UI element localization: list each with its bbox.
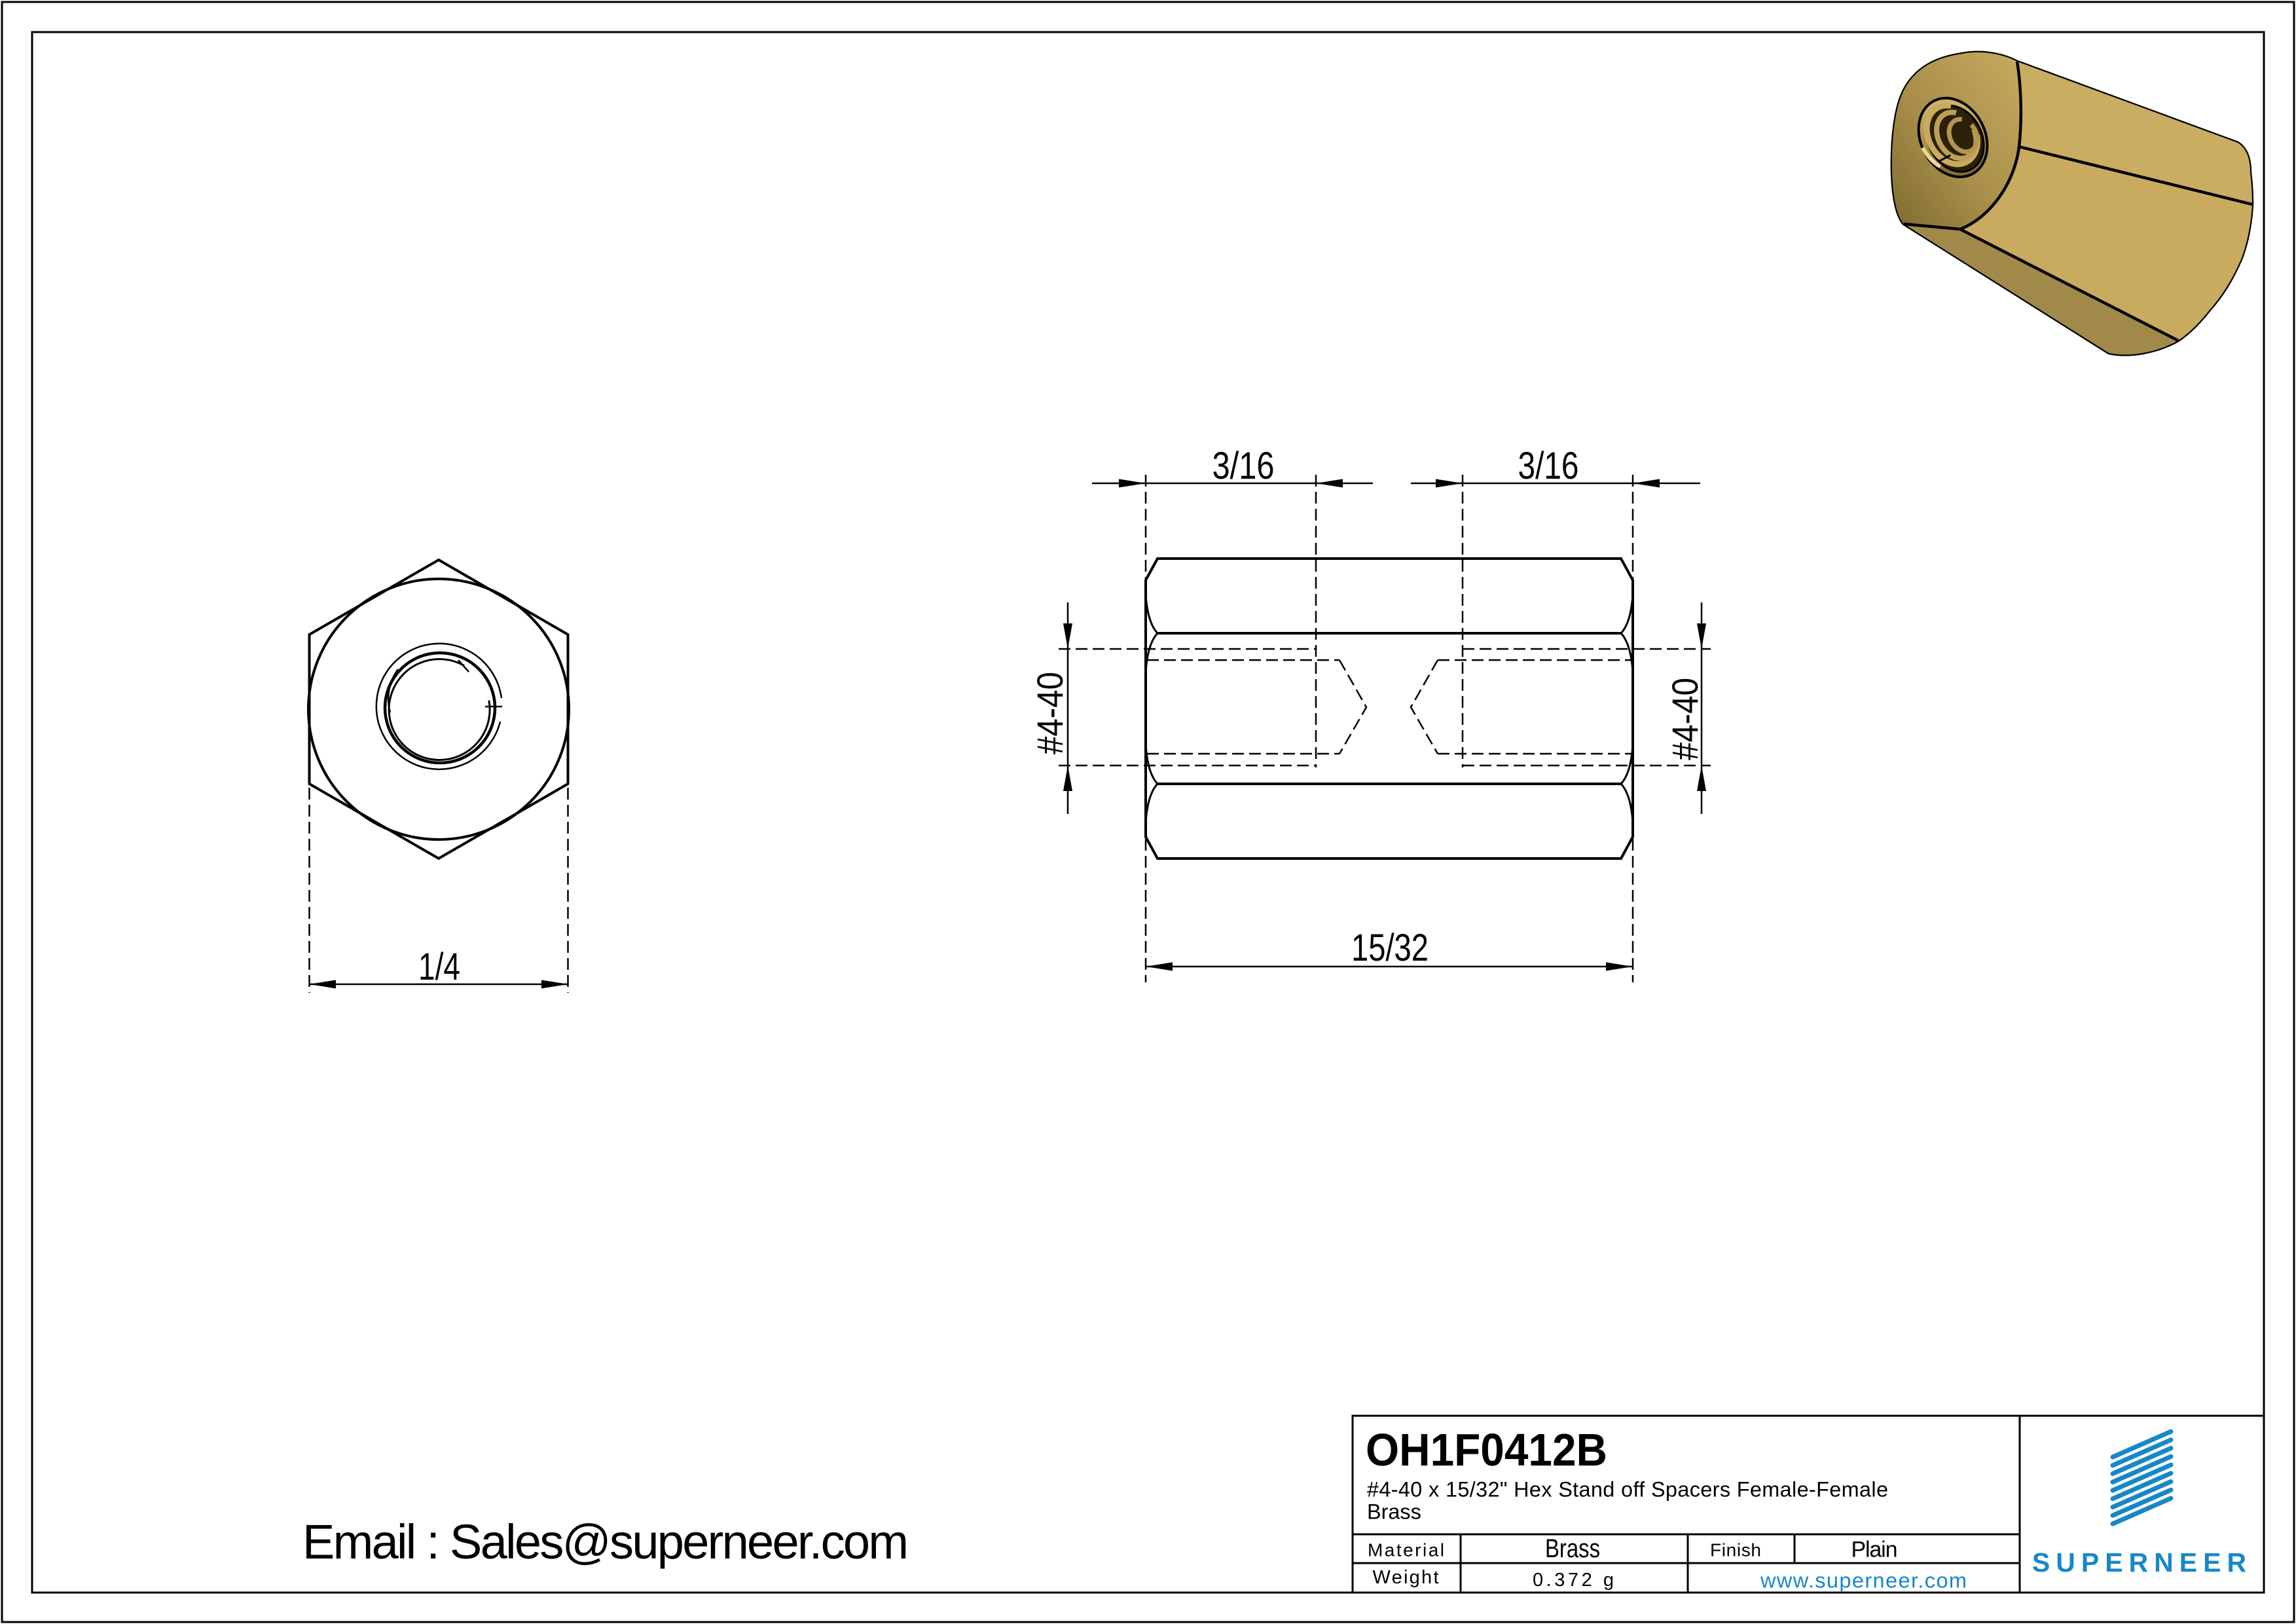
svg-text:OH1F0412B: OH1F0412B	[1366, 1424, 1607, 1475]
svg-text:Email : Sales@superneer.com: Email : Sales@superneer.com	[302, 1515, 909, 1569]
svg-text:1/4: 1/4	[418, 946, 460, 988]
svg-text:3/16: 3/16	[1212, 445, 1275, 487]
svg-text:Weight: Weight	[1373, 1567, 1439, 1588]
svg-text:Finish: Finish	[1710, 1540, 1761, 1560]
svg-text:Plain: Plain	[1851, 1538, 1898, 1562]
svg-text:#4-40: #4-40	[1029, 672, 1070, 754]
svg-text:15/32: 15/32	[1351, 927, 1429, 969]
svg-text:Brass: Brass	[1545, 1534, 1600, 1563]
svg-text:SUPERNEER: SUPERNEER	[2032, 1547, 2252, 1578]
svg-text:Brass: Brass	[1367, 1500, 1421, 1524]
svg-text:www.superneer.com: www.superneer.com	[1760, 1569, 1967, 1593]
svg-text:#4-40 x 15/32" Hex Stand off S: #4-40 x 15/32" Hex Stand off Spacers Fem…	[1367, 1478, 1888, 1502]
svg-text:#4-40: #4-40	[1664, 678, 1705, 760]
svg-text:3/16: 3/16	[1518, 445, 1579, 487]
svg-text:Material: Material	[1368, 1540, 1444, 1560]
